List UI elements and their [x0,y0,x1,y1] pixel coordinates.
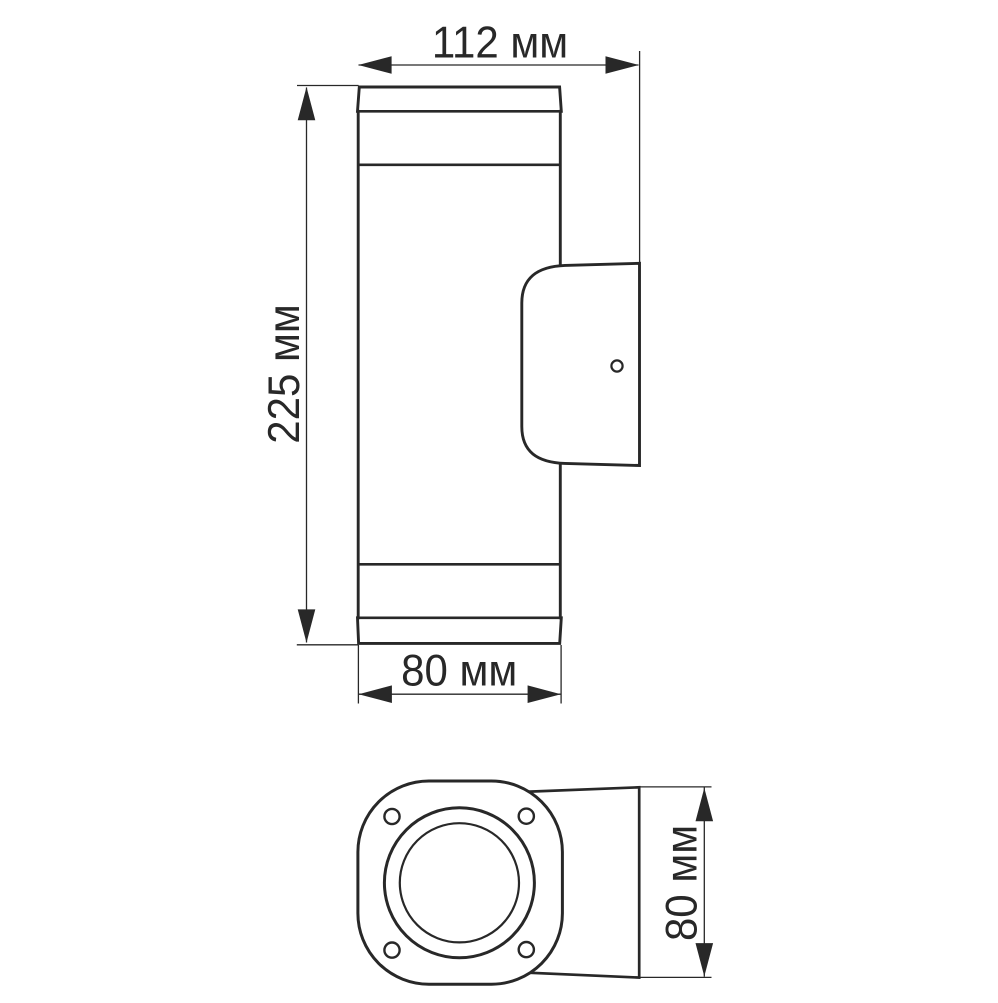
svg-text:80 мм: 80 мм [657,825,706,941]
svg-text:112 мм: 112 мм [432,18,568,67]
svg-text:80 мм: 80 мм [401,646,517,695]
svg-text:225 мм: 225 мм [260,304,309,443]
